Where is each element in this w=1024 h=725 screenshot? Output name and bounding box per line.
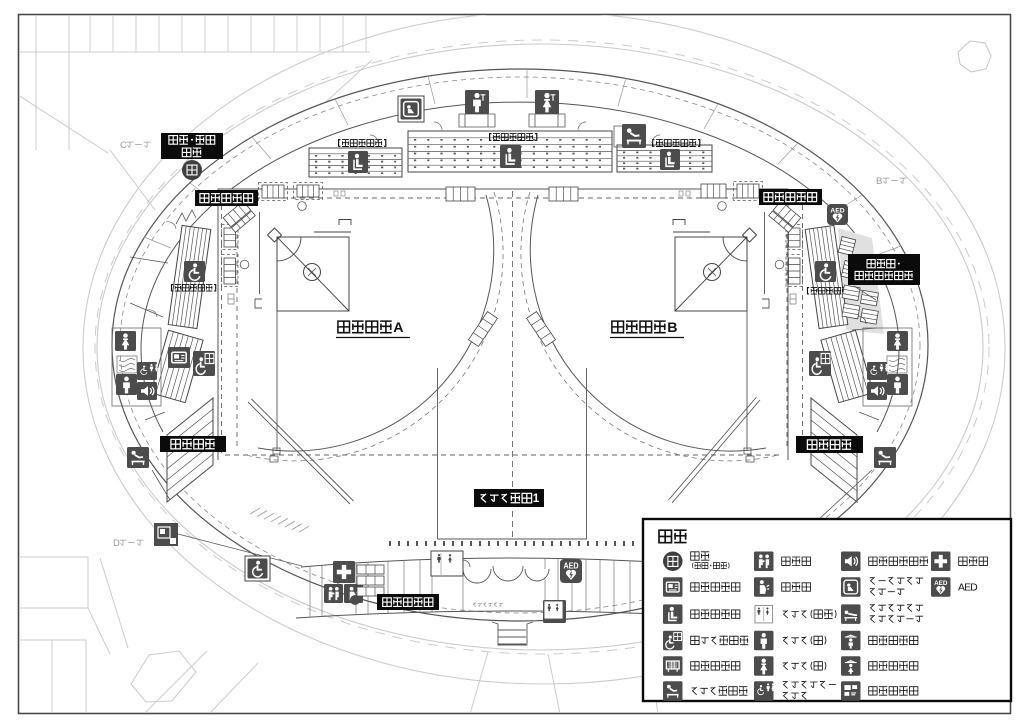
svg-text:D: D (113, 538, 120, 549)
svg-text:1: 1 (533, 492, 540, 505)
svg-text:AED: AED (563, 561, 579, 570)
svg-text:C: C (120, 140, 127, 151)
svg-text:B: B (667, 320, 677, 336)
svg-text:D: D (970, 583, 977, 594)
svg-text:AED: AED (934, 580, 948, 587)
svg-text:AED: AED (830, 207, 844, 214)
svg-text:A: A (393, 320, 403, 336)
svg-text:B: B (876, 176, 882, 187)
